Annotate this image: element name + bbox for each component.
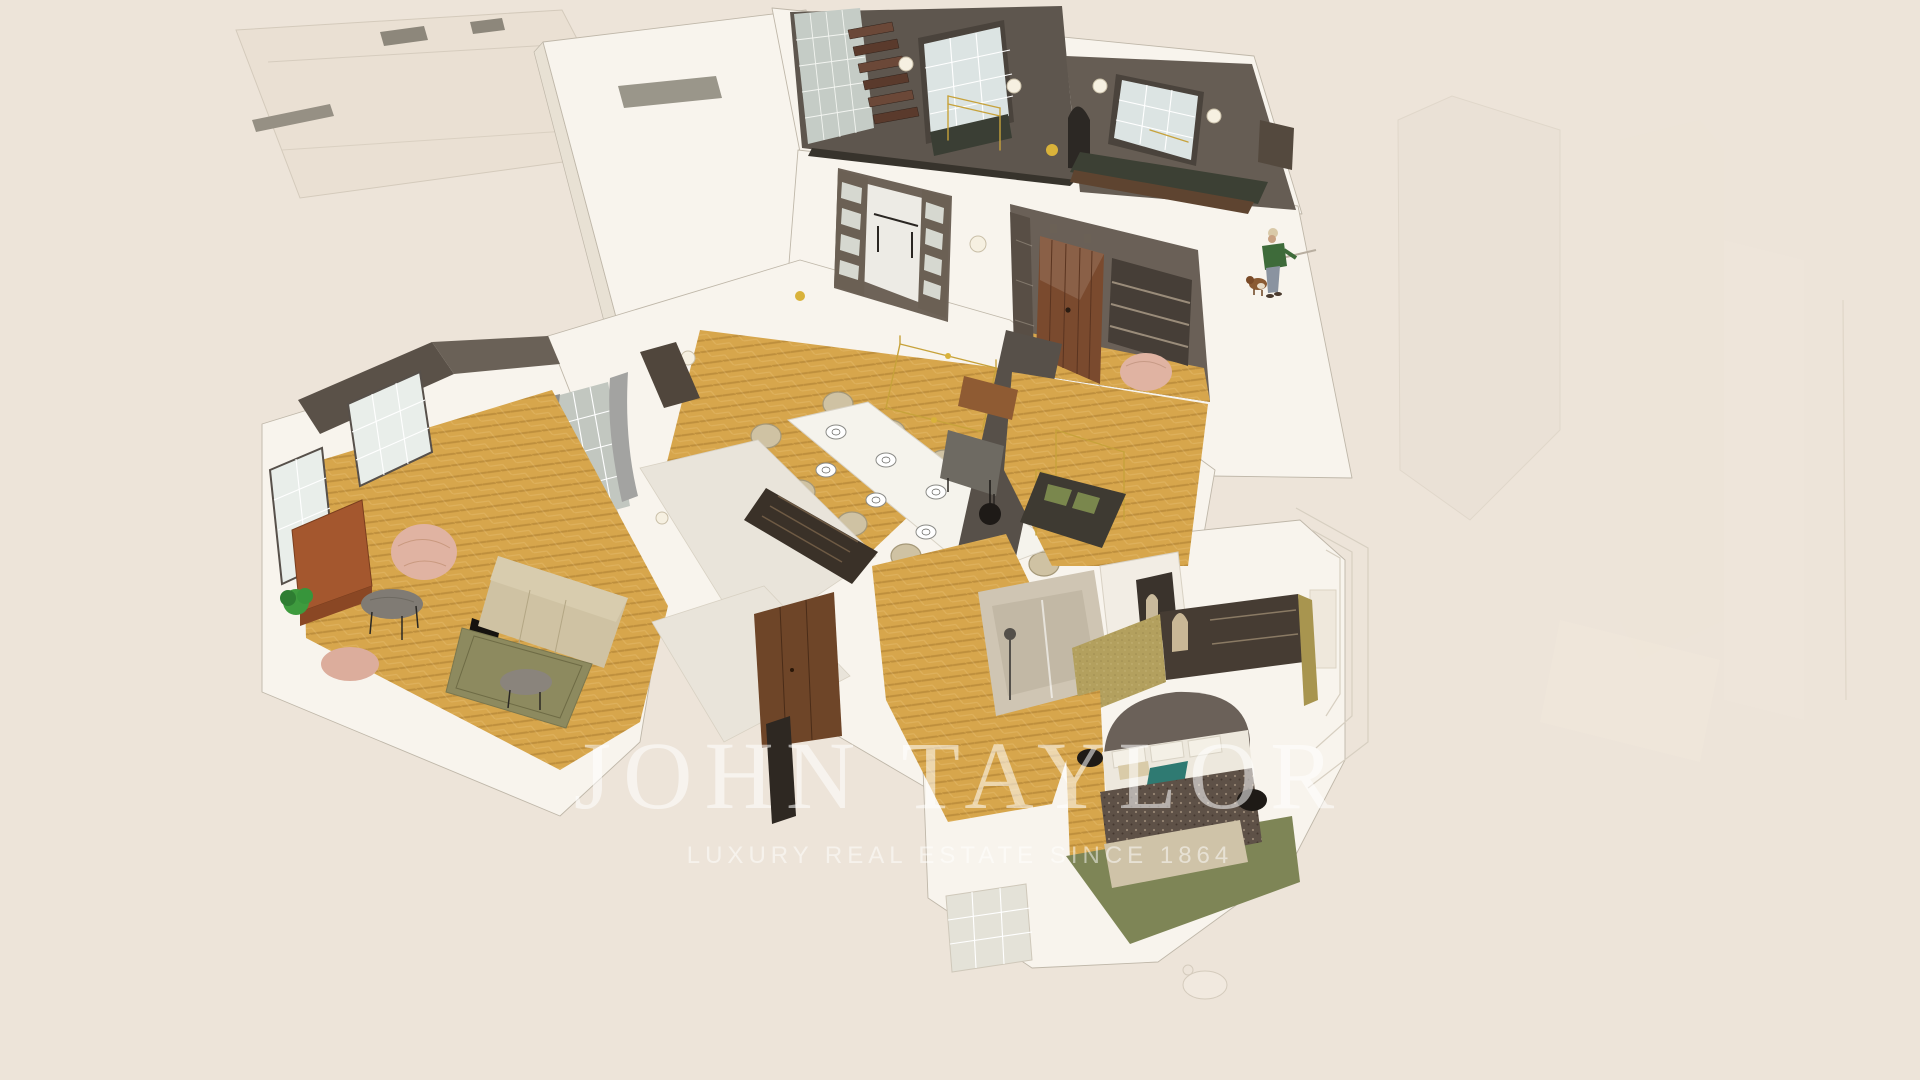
floor-plan-screenshot: JOHN TAYLOR LUXURY REAL ESTATE SINCE 186…: [0, 0, 1920, 1080]
wall-sconce: [656, 512, 668, 524]
wall-sconce: [1207, 109, 1221, 123]
gold-object: [795, 291, 805, 301]
shower-head: [1004, 628, 1016, 640]
nightstand: [1077, 749, 1103, 767]
wall-sconce: [1007, 79, 1021, 93]
bean-bag: [391, 524, 457, 580]
corridor-end-window: [946, 884, 1032, 972]
glazed-door-right: [918, 190, 950, 318]
nightstand: [1237, 789, 1267, 811]
pouf: [321, 647, 379, 681]
wall-sconce: [1093, 79, 1107, 93]
glazed-door-left: [834, 170, 868, 296]
pouf: [1120, 353, 1172, 391]
wall-sconce: [899, 57, 913, 71]
brass-light: [1046, 144, 1058, 156]
wall-sconce: [970, 236, 986, 252]
floor-plan-render: [0, 0, 1920, 1080]
